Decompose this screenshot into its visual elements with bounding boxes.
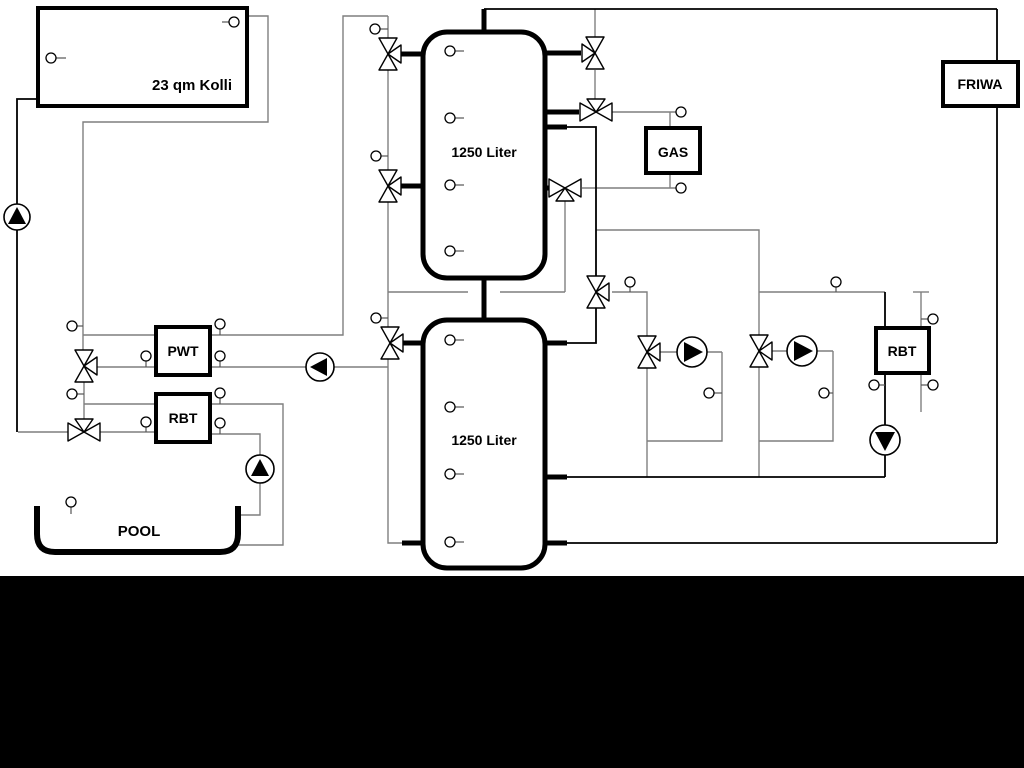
solar-pump-icon [4, 204, 30, 230]
sensor-icon [921, 314, 938, 324]
pwt-pump-icon [306, 353, 334, 381]
sensor-icon [66, 497, 76, 514]
sensor-icon [831, 277, 841, 292]
friwa-station-label: FRIWA [957, 76, 1002, 92]
sensor-icon [67, 389, 84, 399]
pool-pump-icon [246, 455, 274, 483]
sensor-icon [215, 388, 225, 404]
sensor-icon [215, 351, 225, 367]
bottom-black-band [0, 576, 1024, 768]
hydraulic-schematic: 23 qm Kolli 1250 Liter 1250 Liter GAS FR… [0, 0, 1024, 576]
sensor-icon [819, 388, 833, 398]
mixer1-pump-icon [677, 337, 707, 367]
pool-label: POOL [118, 523, 161, 540]
sensor-icon [869, 380, 885, 390]
three-way-valve-icon [379, 38, 401, 70]
sensor-icon [676, 183, 686, 193]
heating-return-pump-icon [870, 425, 900, 455]
sensor-icon [371, 313, 388, 323]
pwt-label: PWT [167, 343, 199, 359]
schematic-screen: 23 qm Kolli 1250 Liter 1250 Liter GAS FR… [0, 0, 1024, 768]
sensor-icon [67, 321, 83, 331]
three-way-valve-icon [587, 276, 609, 308]
sensor-icon [141, 351, 151, 367]
rbt-heating-label: RBT [888, 343, 917, 359]
pipe-solar-flow [17, 99, 38, 432]
sensor-icon [215, 418, 225, 434]
pipe-valve-to-tank [567, 308, 596, 343]
three-way-valve-icon [580, 99, 612, 121]
sensor-icon [215, 319, 225, 335]
rbt-pool-label: RBT [169, 410, 198, 426]
sensor-icon [704, 388, 722, 398]
schematic-canvas: 23 qm Kolli 1250 Liter 1250 Liter GAS FR… [0, 0, 1024, 576]
sensor-icon [370, 24, 388, 34]
pipe-mixer1-supply [612, 292, 647, 336]
three-way-valve-icon [582, 37, 604, 69]
buffer-tank-bottom-label: 1250 Liter [451, 432, 517, 448]
mixing-valve-icon [750, 335, 772, 367]
gas-boiler-label: GAS [658, 144, 688, 160]
buffer-tank-top-label: 1250 Liter [451, 144, 517, 160]
three-way-valve-icon [381, 327, 403, 359]
sensor-icon [141, 417, 151, 432]
sensor-icon [625, 277, 635, 292]
solar-collector-label: 23 qm Kolli [152, 77, 232, 94]
mixing-valve-icon [638, 336, 660, 368]
pipe-mixer2-supply [596, 230, 759, 335]
sensor-icon [921, 380, 938, 390]
three-way-valve-icon [379, 170, 401, 202]
sensor-icon [371, 151, 388, 161]
three-way-valve-icon [549, 179, 581, 201]
sensor-icon [676, 107, 686, 117]
mixer2-pump-icon [787, 336, 817, 366]
pipe [388, 359, 402, 543]
three-way-valve-icon [75, 350, 97, 382]
three-way-valve-icon [68, 419, 100, 441]
